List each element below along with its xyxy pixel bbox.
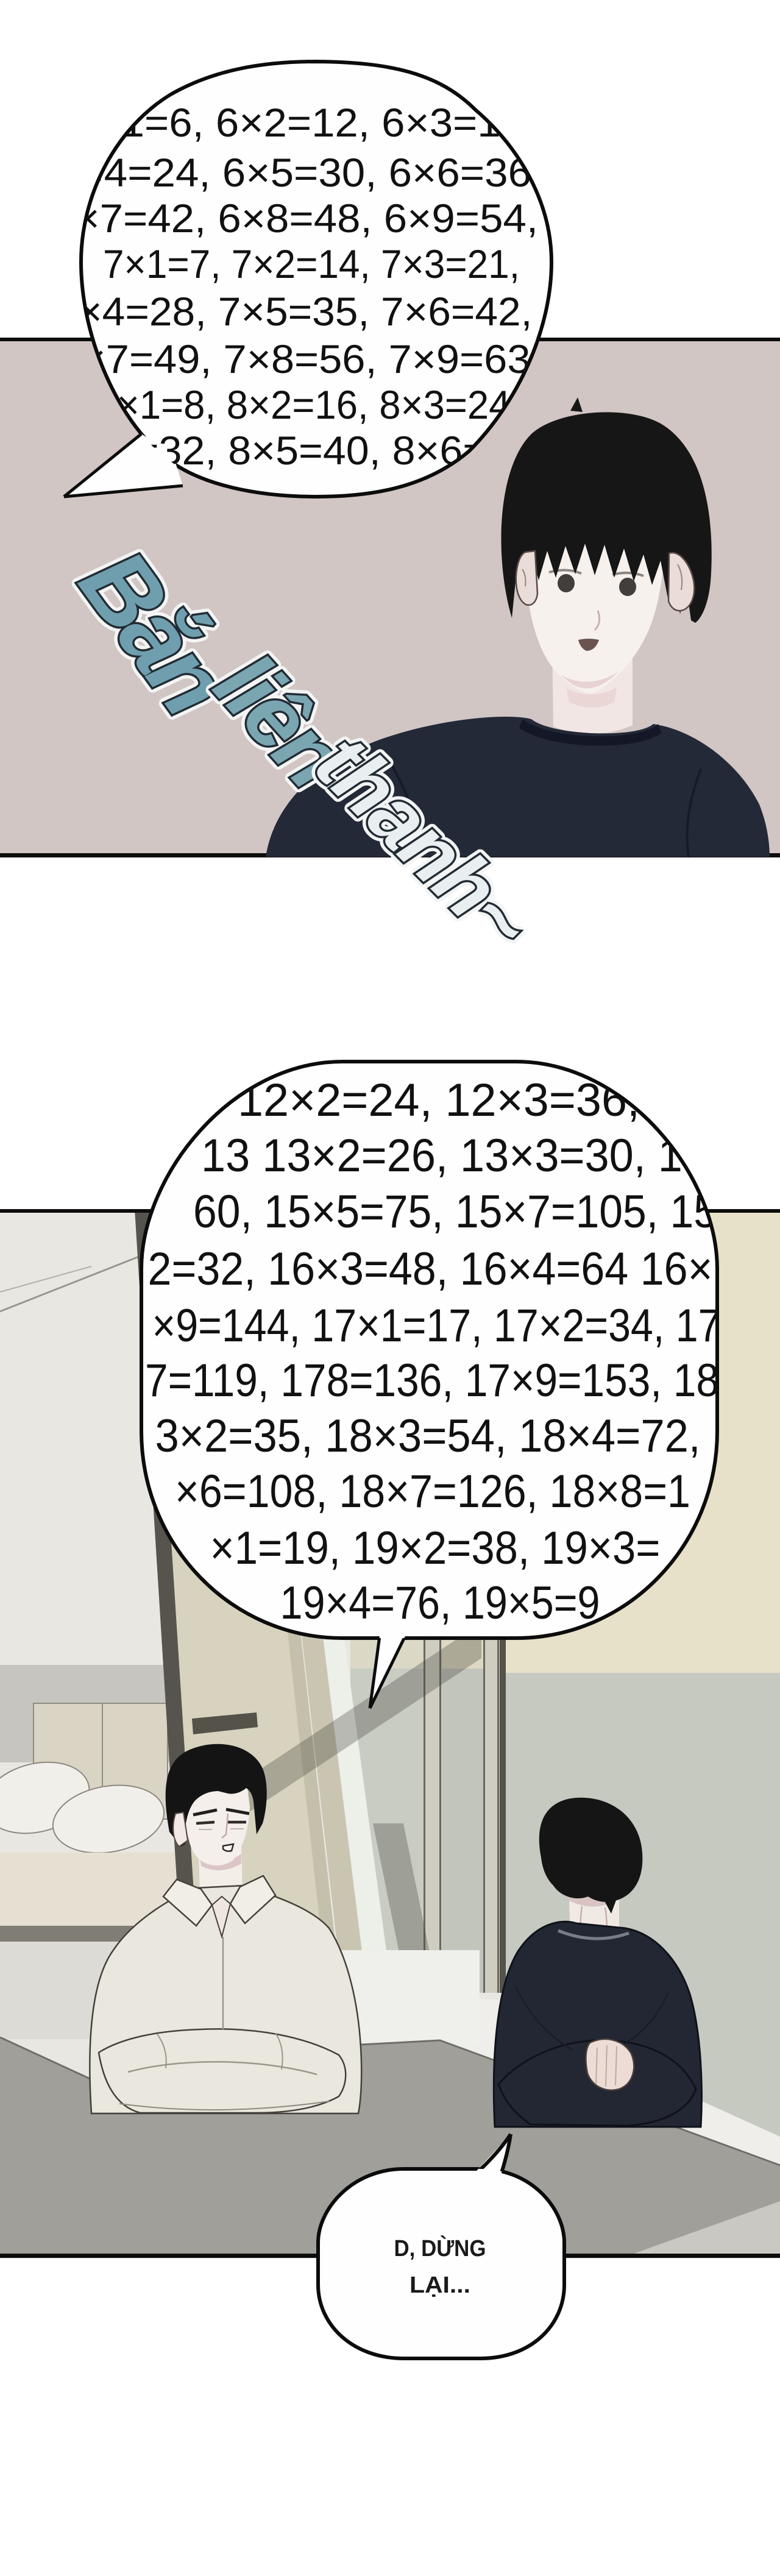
svg-text:2=32, 16×3=48, 16×4=64 16×: 2=32, 16×3=48, 16×4=64 16×	[148, 1243, 713, 1295]
svg-text:3×2=35, 18×3=54, 18×4=72,: 3×2=35, 18×3=54, 18×4=72,	[155, 1410, 701, 1462]
svg-text:7×7=49, 7×8=56, 7×9=63: 7×7=49, 7×8=56, 7×9=63	[58, 336, 531, 381]
svg-text:×6=108, 18×7=126, 18×8=1: ×6=108, 18×7=126, 18×8=1	[175, 1466, 690, 1517]
svg-text:13 13×2=26, 13×3=30, 13: 13 13×2=26, 13×3=30, 13	[201, 1130, 707, 1182]
svg-text:19×4=76, 19×5=9: 19×4=76, 19×5=9	[280, 1577, 600, 1629]
svg-text:12×2=24, 12×3=36,: 12×2=24, 12×3=36,	[238, 1074, 640, 1126]
svg-text:6×4=24, 6×5=30, 6×6=36: 6×4=24, 6×5=30, 6×6=36	[56, 150, 531, 195]
svg-text:7×1=7, 7×2=14, 7×3=21,: 7×1=7, 7×2=14, 7×3=21,	[103, 241, 520, 286]
svg-text:60, 15×5=75, 15×7=105, 15: 60, 15×5=75, 15×7=105, 15	[193, 1186, 717, 1238]
svg-text:7×4=28, 7×5=35, 7×6=42,: 7×4=28, 7×5=35, 7×6=42,	[55, 289, 533, 334]
svg-text:8×1=8, 8×2=16, 8×3=24: 8×1=8, 8×2=16, 8×3=24	[96, 382, 511, 427]
svg-text:D, DỪNG: D, DỪNG	[394, 2235, 486, 2262]
svg-text:×1=19, 19×2=38, 19×3=: ×1=19, 19×2=38, 19×3=	[210, 1522, 661, 1574]
svg-text:LẠI...: LẠI...	[409, 2273, 470, 2298]
svg-text:6×7=42, 6×8=48, 6×9=54,: 6×7=42, 6×8=48, 6×9=54,	[52, 196, 538, 241]
svg-text:7=119, 178=136, 17×9=153, 18: 7=119, 178=136, 17×9=153, 18	[145, 1355, 719, 1407]
svg-text:×9=144, 17×1=17, 17×2=34, 17: ×9=144, 17×1=17, 17×2=34, 17	[152, 1300, 721, 1352]
